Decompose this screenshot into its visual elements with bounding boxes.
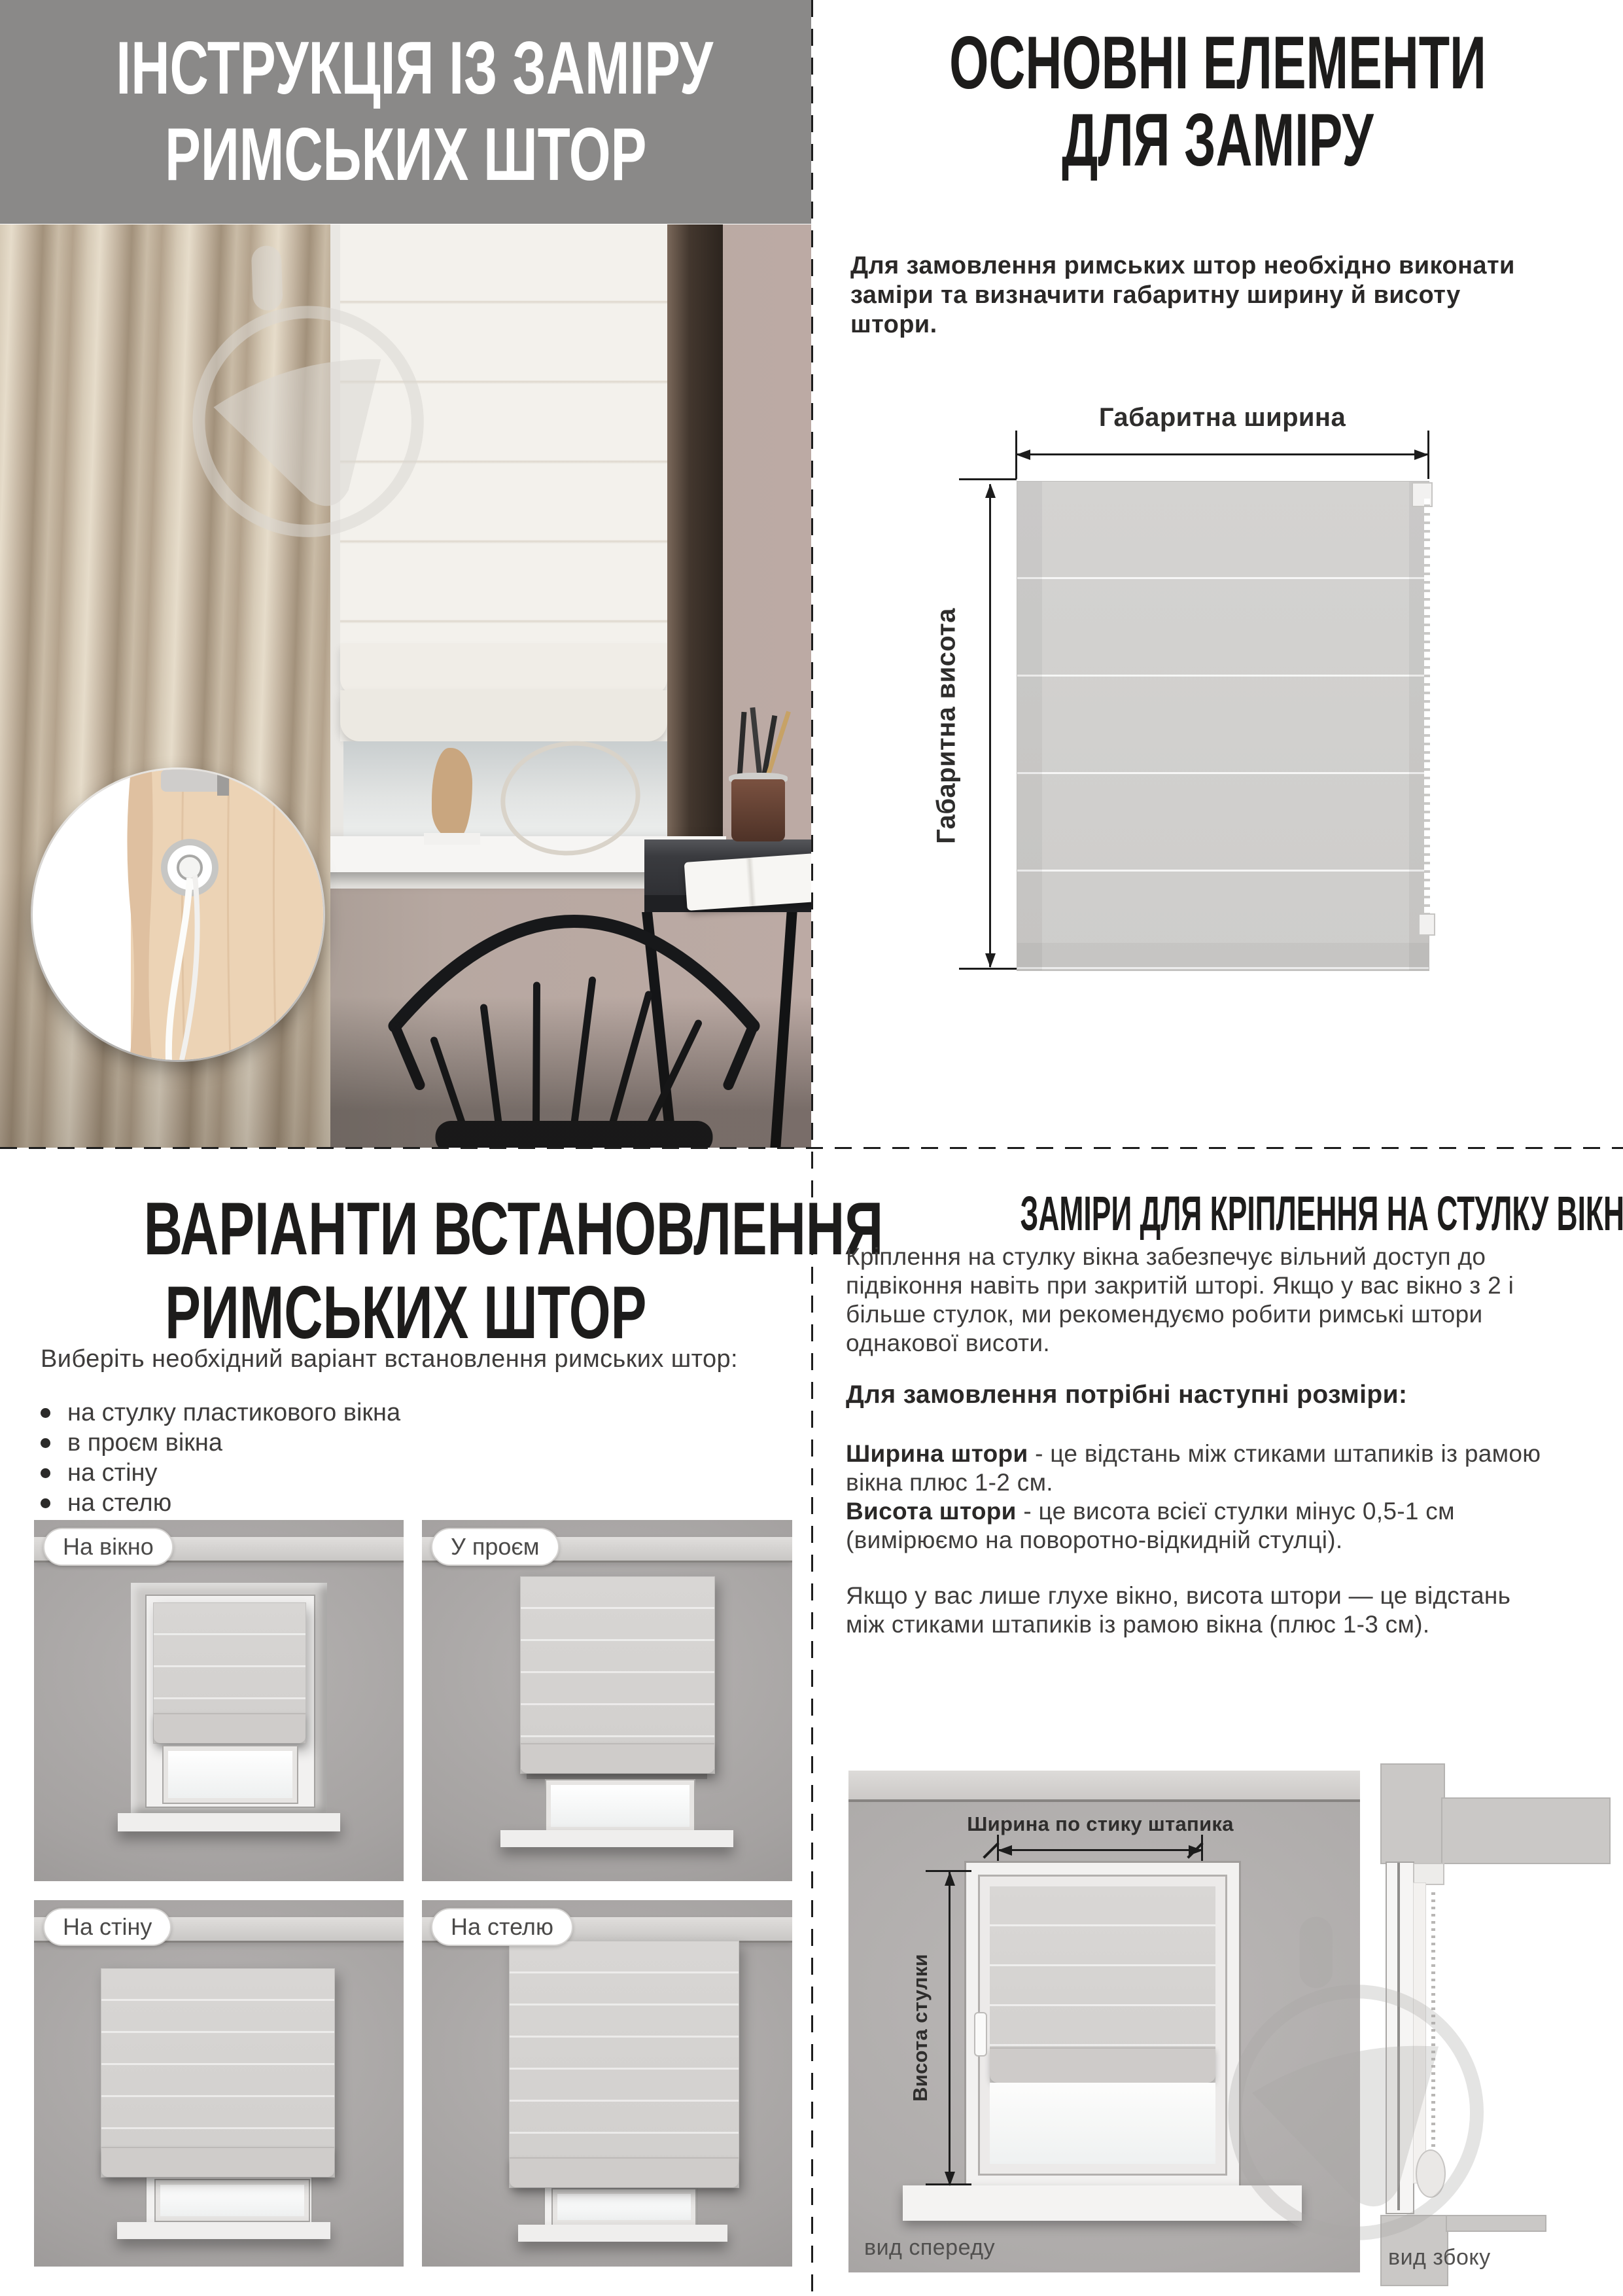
- dashed-separator-horizontal: [0, 1147, 1623, 1149]
- windowsill: [500, 1830, 733, 1847]
- height-term: Висота штори: [846, 1498, 1017, 1525]
- roman-blind: [153, 1602, 306, 1744]
- install-tile-wall: На стіну: [34, 1900, 404, 2267]
- windowsill: [118, 1813, 340, 1831]
- roman-blind: [990, 1886, 1215, 2083]
- windowsill: [518, 2225, 727, 2242]
- list-item: на стіну: [41, 1458, 400, 1488]
- width-term: Ширина штори: [846, 1440, 1028, 1467]
- tile-label: На стелю: [431, 1908, 573, 1946]
- left-header: ІНСТРУКЦІЯ ІЗ ЗАМІРУ РИМСЬКИХ ШТОР: [0, 0, 811, 224]
- pen: [750, 707, 762, 778]
- list-item: на стелю: [41, 1488, 400, 1518]
- install-intro: Виберіть необхідний варіант встановлення…: [41, 1345, 738, 1373]
- tile-label: У проєм: [431, 1528, 559, 1566]
- list-item: на стулку пластикового вікна: [41, 1398, 400, 1428]
- window-glass: [156, 2180, 309, 2221]
- main-elements-title-line2: ДЛЯ ЗАМІРУ: [812, 103, 1623, 178]
- pen: [737, 712, 747, 777]
- sash-height-label: Висота стулки: [909, 1930, 932, 2126]
- install-tile-opening: У проєм: [422, 1520, 792, 1881]
- photo-detail-inset: [33, 769, 323, 1060]
- grommet-detail-illustration: [33, 769, 323, 1060]
- instruction-leaflet: ІНСТРУКЦІЯ ІЗ ЗАМІРУ РИМСЬКИХ ШТОР: [0, 0, 1623, 2296]
- install-tile-window: На вікно: [34, 1520, 404, 1881]
- main-elements-title-line1: ОСНОВНІ ЕЛЕМЕНТИ: [812, 26, 1623, 101]
- cornice: [848, 1771, 1360, 1802]
- blind-chain: [1424, 499, 1430, 917]
- roman-blind: [509, 1941, 739, 2188]
- photo-window-frame-shadow: [667, 224, 723, 889]
- bead-width-label: Ширина по стику штапика: [927, 1812, 1274, 1836]
- list-item: в проєм вікна: [41, 1428, 400, 1458]
- window-glass: [164, 1746, 297, 1803]
- sash-title: ЗАМІРИ ДЛЯ КРІПЛЕННЯ НА СТУЛКУ ВІКНА: [812, 1190, 1623, 1238]
- photo-pen-cup: [731, 779, 785, 841]
- sizes-heading: Для замовлення потрібні наступні розміри…: [846, 1381, 1407, 1409]
- window-glass: [553, 2189, 695, 2225]
- front-view-caption: вид спереду: [864, 2235, 995, 2261]
- size-definitions: Ширина штори - це відстань між стиками ш…: [846, 1439, 1541, 1555]
- roman-blind: [101, 1968, 335, 2178]
- page-title-line1: ІНСТРУКЦІЯ ІЗ ЗАМІРУ: [0, 31, 811, 106]
- overall-width-arrow: [1017, 453, 1428, 455]
- roman-blind-diagram: [1017, 481, 1429, 971]
- overall-height-label: Габаритна висота: [932, 563, 962, 890]
- install-title-line2: РИМСЬКИХ ШТОР: [0, 1276, 811, 1351]
- main-elements-intro: Для замовлення римських штор необхідно в…: [850, 251, 1515, 340]
- page-title-line2: РИМСЬКИХ ШТОР: [0, 118, 811, 192]
- tile-label: На стіну: [43, 1908, 171, 1946]
- windowsill: [117, 2222, 330, 2239]
- roman-blind: [520, 1576, 715, 1774]
- side-view-caption: вид збоку: [1388, 2245, 1491, 2270]
- sash-height-arrow: [949, 1872, 951, 2185]
- overall-width-label: Габаритна ширина: [1017, 403, 1428, 433]
- overall-height-arrow: [989, 484, 991, 967]
- photo-sculpture: [432, 748, 472, 839]
- wall-section: [1380, 1763, 1445, 1864]
- hero-photo: [0, 224, 811, 1148]
- install-options-list: на стулку пластикового вікна в проєм вік…: [41, 1398, 400, 1518]
- blind-window-note: Якщо у вас лише глухе вікно, висота штор…: [846, 1581, 1510, 1639]
- install-title-line1: ВАРІАНТИ ВСТАНОВЛЕННЯ: [0, 1192, 811, 1267]
- window-glass: [990, 2083, 1215, 2164]
- bead-width-arrow: [998, 1849, 1202, 1851]
- install-tile-ceiling: На стелю: [422, 1900, 792, 2267]
- window-handle: [974, 2012, 987, 2057]
- window-glass: [546, 1780, 694, 1831]
- sash-intro: Кріплення на стулку вікна забезпечує віл…: [846, 1243, 1514, 1358]
- tile-label: На вікно: [43, 1528, 173, 1566]
